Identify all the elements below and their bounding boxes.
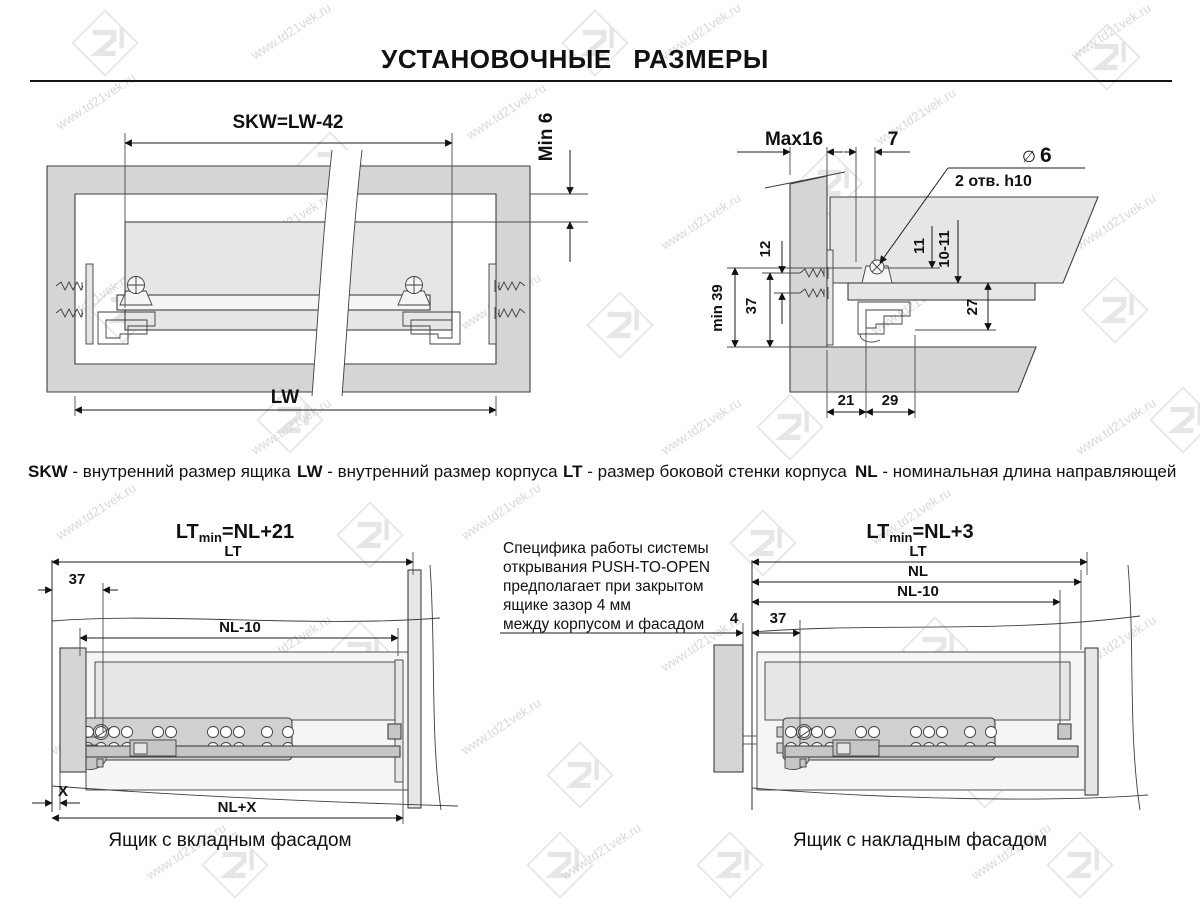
legend-item-lw: LW - внутренний размер корпуса xyxy=(297,462,558,482)
dim-29-label: 29 xyxy=(882,392,899,409)
caption-overlay-facade: Ящик с накладным фасадом xyxy=(720,830,1120,852)
dim-nl10-label: NL-10 xyxy=(897,583,939,600)
formula-prefix: LT xyxy=(866,521,889,543)
legend-term: NL xyxy=(855,462,878,481)
dim-37-label: 37 xyxy=(743,298,760,315)
formula-prefix: LT xyxy=(176,521,199,543)
title-divider xyxy=(30,80,1172,82)
formula-sub: min xyxy=(889,530,912,545)
logo-21-icon xyxy=(758,395,823,460)
dim-27-label: 27 xyxy=(964,299,981,316)
watermark-text: www.td21vek.ru xyxy=(1073,395,1159,458)
dim-37-label: 37 xyxy=(69,571,86,588)
note-line: предполагает при закрытом xyxy=(503,577,710,596)
watermark-text: www.td21vek.ru xyxy=(53,480,139,543)
hole-note-label: 2 отв. h10 xyxy=(955,173,1032,190)
watermark-text: www.td21vek.ru xyxy=(873,85,959,148)
figure-inset-facade: LT 37 NL-10 X NL+X LTmin=NL+21 xyxy=(32,521,458,824)
page-title: УСТАНОВОЧНЫЕ РАЗМЕРЫ xyxy=(0,44,1150,75)
legend-item-nl: NL - номинальная длина направляющей xyxy=(855,462,1176,482)
legend-item-skw: SKW - внутренний размер ящика xyxy=(28,462,291,482)
figure-front-section: Max16 7 ∅6 2 отв. h10 12 37 min 39 11 10… xyxy=(709,129,1098,418)
diagram-canvas: www.td21vek.ru www.td21vek.ru www.td21ve… xyxy=(0,0,1200,900)
page: www.td21vek.ru www.td21vek.ru www.td21ve… xyxy=(0,0,1200,900)
logo-21-icon xyxy=(1083,278,1148,343)
note-line: Специфика работы системы xyxy=(503,539,710,558)
note-line: открывания PUSH-TO-OPEN xyxy=(503,558,710,577)
logo-21-icon xyxy=(338,503,403,568)
dim-lw-label: LW xyxy=(271,387,300,408)
diameter-value: 6 xyxy=(1040,144,1052,167)
legend-term: SKW xyxy=(28,462,68,481)
push-to-open-note: Специфика работы системы открывания PUSH… xyxy=(503,539,710,634)
logo-21-icon xyxy=(731,511,796,576)
caption-inset-facade: Ящик с вкладным фасадом xyxy=(30,830,430,852)
dim-10-11-label: 10-11 xyxy=(936,230,953,268)
legend-def: - внутренний размер корпуса xyxy=(327,462,557,481)
legend-item-lt: LT - размер боковой стенки корпуса xyxy=(563,462,847,482)
hole-diameter-label: ∅6 xyxy=(1022,144,1052,167)
figure-plan-view: SKW=LW-42 Min 6 LW xyxy=(47,112,588,416)
logo-21-icon xyxy=(588,293,653,358)
note-line: между корпусом и фасадом xyxy=(503,615,710,634)
diameter-symbol: ∅ xyxy=(1022,149,1036,166)
legend-term: LT xyxy=(563,462,583,481)
formula-rest: =NL+3 xyxy=(912,521,973,543)
dim-nl-label: NL xyxy=(908,563,928,580)
dim-x-label: X xyxy=(58,783,68,800)
dim-skw-label: SKW=LW-42 xyxy=(233,112,344,133)
formula-sub: min xyxy=(199,530,222,545)
formula-inset: LTmin=NL+21 xyxy=(176,521,294,545)
legend-def: - номинальная длина направляющей xyxy=(882,462,1176,481)
watermark-text: www.td21vek.ru xyxy=(658,190,744,253)
watermark-text: www.td21vek.ru xyxy=(558,820,644,883)
legend-def: - размер боковой стенки корпуса xyxy=(587,462,847,481)
dim-4-label: 4 xyxy=(730,610,739,627)
logo-21-icon xyxy=(1151,388,1200,453)
dim-min6-label: Min 6 xyxy=(536,113,557,162)
watermark-text: www.td21vek.ru xyxy=(658,395,744,458)
watermark-text: www.td21vek.ru xyxy=(458,480,544,543)
formula-rest: =NL+21 xyxy=(222,521,294,543)
dim-21-label: 21 xyxy=(838,392,855,409)
dim-lt-label: LT xyxy=(224,543,241,560)
legend-def: - внутренний размер ящика xyxy=(72,462,290,481)
dim-nl10-label: NL-10 xyxy=(219,619,261,636)
formula-overlay: LTmin=NL+3 xyxy=(866,521,973,545)
watermark-text: www.td21vek.ru xyxy=(458,695,544,758)
dim-max16-label: Max16 xyxy=(765,129,823,150)
dim-lt-label: LT xyxy=(909,543,926,560)
dim-11-label: 11 xyxy=(911,238,928,254)
legend-term: LW xyxy=(297,462,323,481)
dim-7-label: 7 xyxy=(888,129,899,150)
dim-nlx-label: NL+X xyxy=(218,799,257,816)
note-line: ящике зазор 4 мм xyxy=(503,596,710,615)
logo-21-icon xyxy=(548,743,613,808)
dim-37-label: 37 xyxy=(770,610,787,627)
dim-min39-label: min 39 xyxy=(709,284,726,332)
dim-12-label: 12 xyxy=(757,241,774,258)
